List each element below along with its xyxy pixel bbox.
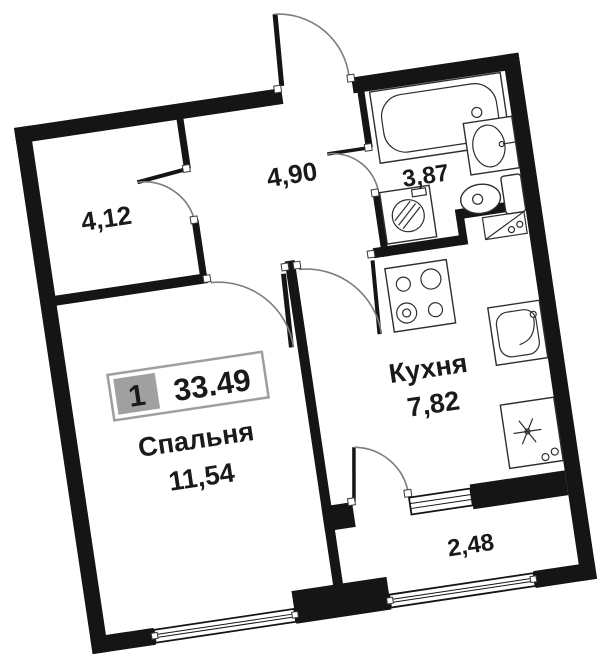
bedroom-area-label: 11,54 bbox=[167, 457, 237, 496]
kitchen-balcony-window bbox=[409, 489, 473, 515]
kitchen-name-label: Кухня bbox=[387, 348, 469, 389]
unit-area-badge: 1 33.49 bbox=[108, 352, 269, 421]
wall-balcony-left bbox=[321, 502, 355, 531]
shaft-box bbox=[482, 212, 527, 240]
balcony-area-label: 2,48 bbox=[446, 529, 496, 563]
bathroom-area-label: 3,87 bbox=[401, 159, 451, 193]
kitchen-sink bbox=[488, 300, 548, 365]
wall-balcony-right bbox=[470, 470, 569, 509]
floor-plan: 1 33.49 4,12 4,90 3,87 Кухня 7,82 Спальн… bbox=[0, 0, 600, 664]
wall-hallway-lower bbox=[192, 220, 207, 276]
entrance-door bbox=[271, 5, 349, 86]
bedroom-door bbox=[211, 272, 294, 358]
hallway-door bbox=[137, 169, 195, 228]
floor-plan-canvas: 1 33.49 4,12 4,90 3,87 Кухня 7,82 Спальн… bbox=[0, 0, 600, 664]
washing-machine bbox=[380, 185, 437, 244]
wall-top-left bbox=[14, 88, 283, 144]
bedroom-window bbox=[154, 609, 296, 643]
wall-hallway-bedroom bbox=[53, 273, 208, 306]
bedroom-name-label: Спальня bbox=[136, 416, 256, 463]
refrigerator bbox=[500, 397, 563, 468]
wall-central bbox=[285, 260, 346, 601]
wall-bottom-right bbox=[533, 562, 597, 588]
wall-hallway-upper bbox=[176, 117, 191, 169]
kitchen-door bbox=[299, 258, 383, 344]
balcony-window bbox=[389, 573, 535, 607]
kitchen-area-label: 7,82 bbox=[405, 385, 461, 422]
corridor-area-label: 4,90 bbox=[265, 156, 319, 193]
bathroom-sink bbox=[463, 116, 519, 175]
balcony-door bbox=[346, 440, 408, 502]
hallway-area-label: 4,12 bbox=[79, 200, 133, 237]
stove bbox=[385, 260, 456, 332]
